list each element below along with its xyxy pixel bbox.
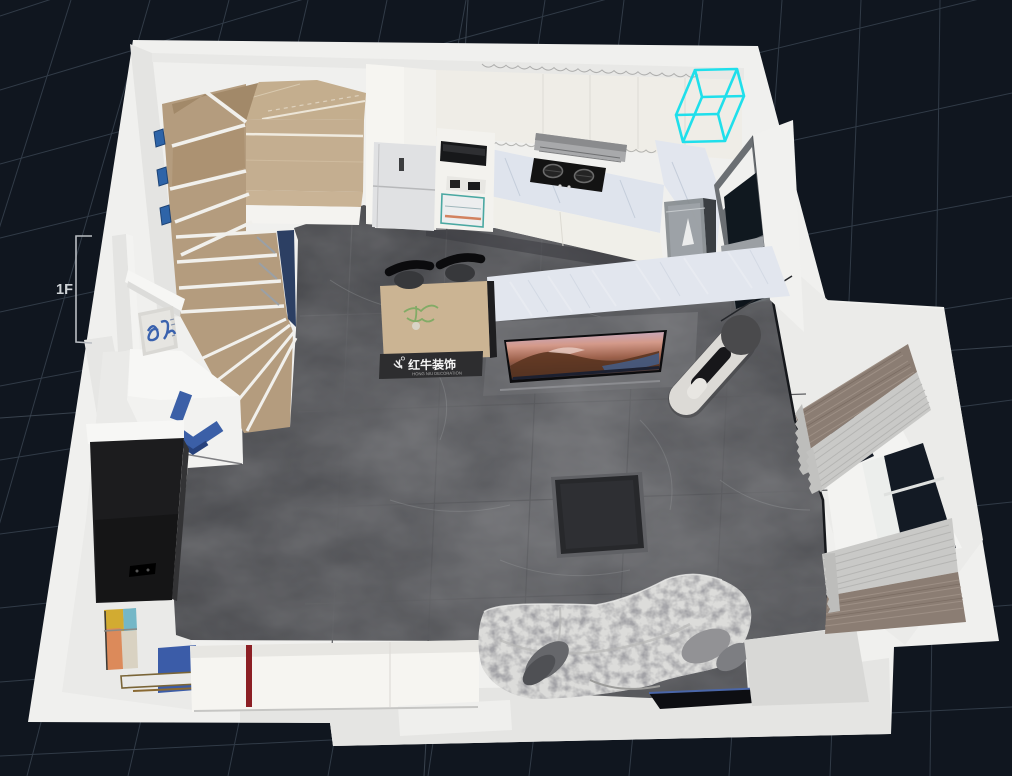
svg-text:HONG NIU DECORATION: HONG NIU DECORATION bbox=[412, 370, 462, 376]
svg-text:1F: 1F bbox=[56, 282, 73, 298]
